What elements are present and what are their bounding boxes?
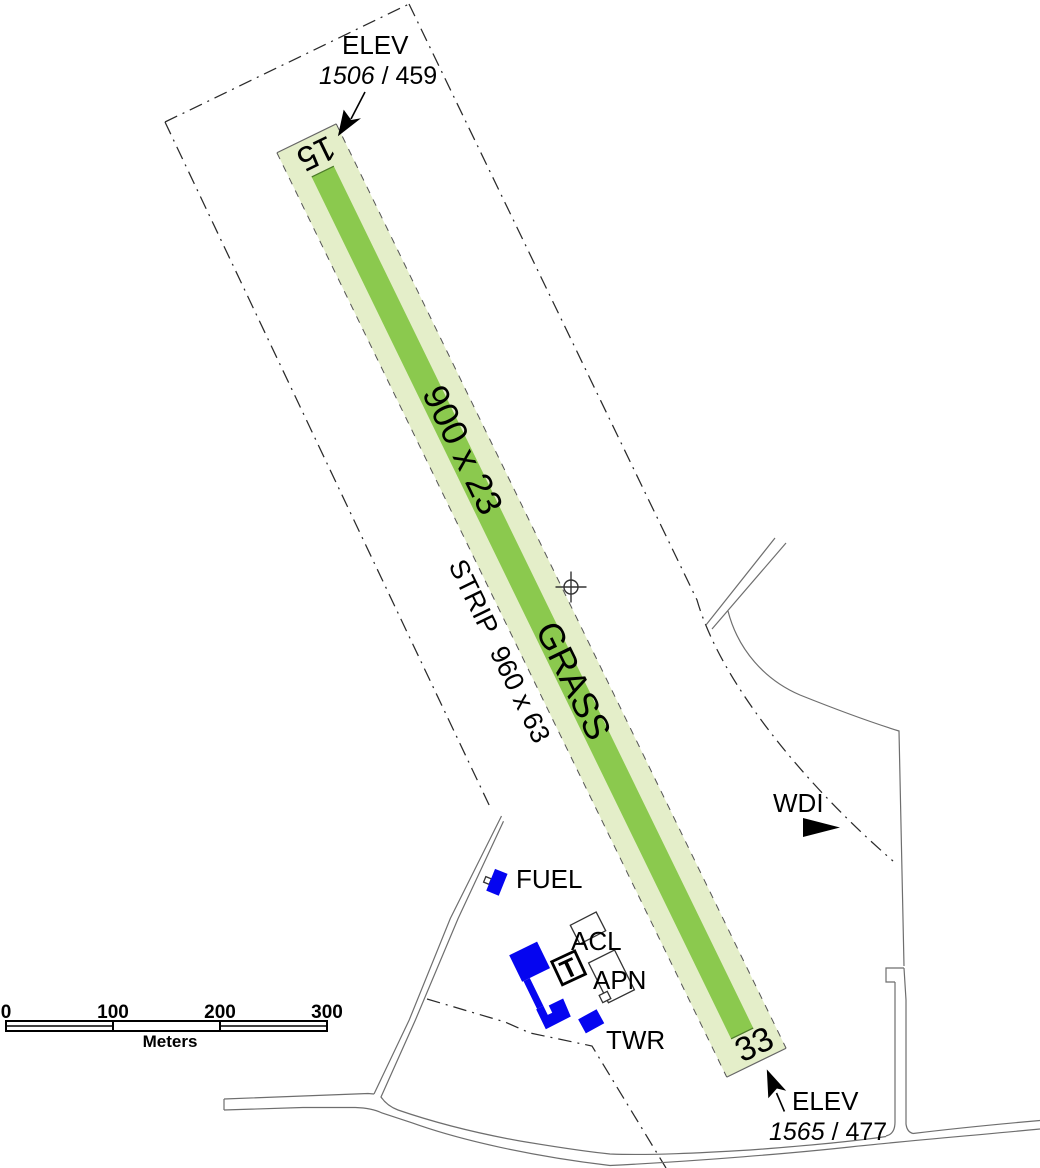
svg-text:Meters: Meters — [143, 1032, 198, 1051]
svg-text:0: 0 — [1, 1002, 12, 1023]
svg-text:1565 / 477: 1565 / 477 — [769, 1118, 887, 1146]
svg-text:1506 / 459: 1506 / 459 — [319, 62, 437, 90]
svg-text:FUEL: FUEL — [516, 864, 582, 894]
svg-text:TWR: TWR — [606, 1025, 665, 1055]
svg-text:WDI: WDI — [773, 788, 824, 818]
svg-text:ELEV: ELEV — [342, 30, 409, 60]
svg-text:200: 200 — [204, 1002, 236, 1023]
svg-text:ACL: ACL — [571, 926, 622, 956]
svg-text:APN: APN — [593, 965, 646, 995]
svg-text:ELEV: ELEV — [792, 1086, 859, 1116]
svg-text:300: 300 — [311, 1002, 343, 1023]
svg-text:100: 100 — [97, 1002, 129, 1023]
